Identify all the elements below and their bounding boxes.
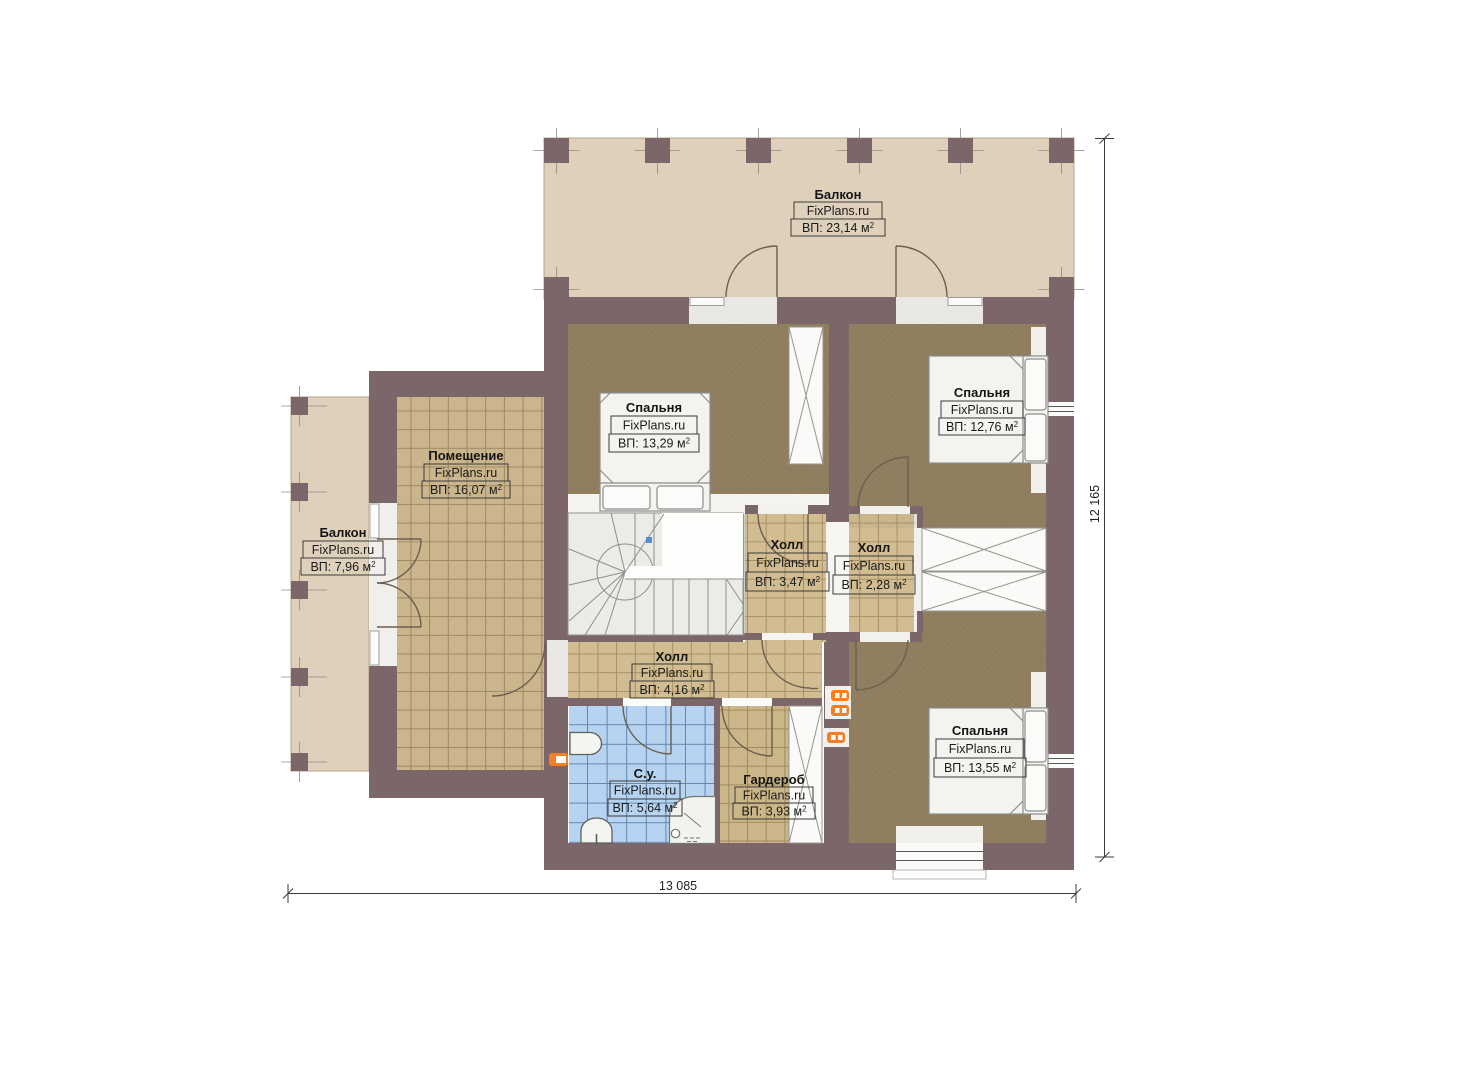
svg-text:FixPlans.ru: FixPlans.ru [756,556,819,570]
svg-text:Спальня: Спальня [626,400,682,415]
svg-text:FixPlans.ru: FixPlans.ru [614,784,677,798]
svg-text:Спальня: Спальня [952,723,1008,738]
svg-text:Холл: Холл [656,649,689,664]
svg-text:ВП: 13,29 м2: ВП: 13,29 м2 [618,437,691,451]
svg-text:ВП: 5,64 м2: ВП: 5,64 м2 [612,801,678,815]
svg-text:FixPlans.ru: FixPlans.ru [641,666,704,680]
svg-text:ВП: 3,47 м2: ВП: 3,47 м2 [755,575,821,589]
svg-text:Гардероб: Гардероб [743,772,804,787]
svg-text:ВП: 4,16 м2: ВП: 4,16 м2 [639,683,705,697]
svg-text:FixPlans.ru: FixPlans.ru [623,419,686,433]
svg-text:ВП: 12,76 м2: ВП: 12,76 м2 [946,420,1019,434]
svg-text:Спальня: Спальня [954,385,1010,400]
svg-text:FixPlans.ru: FixPlans.ru [949,742,1012,756]
svg-text:13 085: 13 085 [659,879,697,893]
svg-text:FixPlans.ru: FixPlans.ru [312,543,375,557]
svg-text:Балкон: Балкон [815,187,862,202]
svg-text:FixPlans.ru: FixPlans.ru [843,559,906,573]
svg-text:ВП: 16,07 м2: ВП: 16,07 м2 [430,483,503,497]
svg-text:FixPlans.ru: FixPlans.ru [807,204,870,218]
svg-text:FixPlans.ru: FixPlans.ru [435,466,498,480]
svg-text:12 165: 12 165 [1088,485,1102,523]
svg-text:Холл: Холл [771,537,804,552]
svg-text:Холл: Холл [858,540,891,555]
svg-text:ВП: 23,14 м2: ВП: 23,14 м2 [802,221,875,235]
svg-text:Балкон: Балкон [320,525,367,540]
svg-text:С.у.: С.у. [634,766,657,781]
svg-text:ВП: 13,55 м2: ВП: 13,55 м2 [944,761,1017,775]
svg-text:ВП: 7,96 м2: ВП: 7,96 м2 [310,560,376,574]
svg-text:ВП: 2,28 м2: ВП: 2,28 м2 [841,578,907,592]
svg-text:ВП: 3,93 м2: ВП: 3,93 м2 [741,805,807,819]
svg-text:Помещение: Помещение [428,448,503,463]
svg-text:FixPlans.ru: FixPlans.ru [743,789,806,803]
svg-text:FixPlans.ru: FixPlans.ru [951,403,1014,417]
